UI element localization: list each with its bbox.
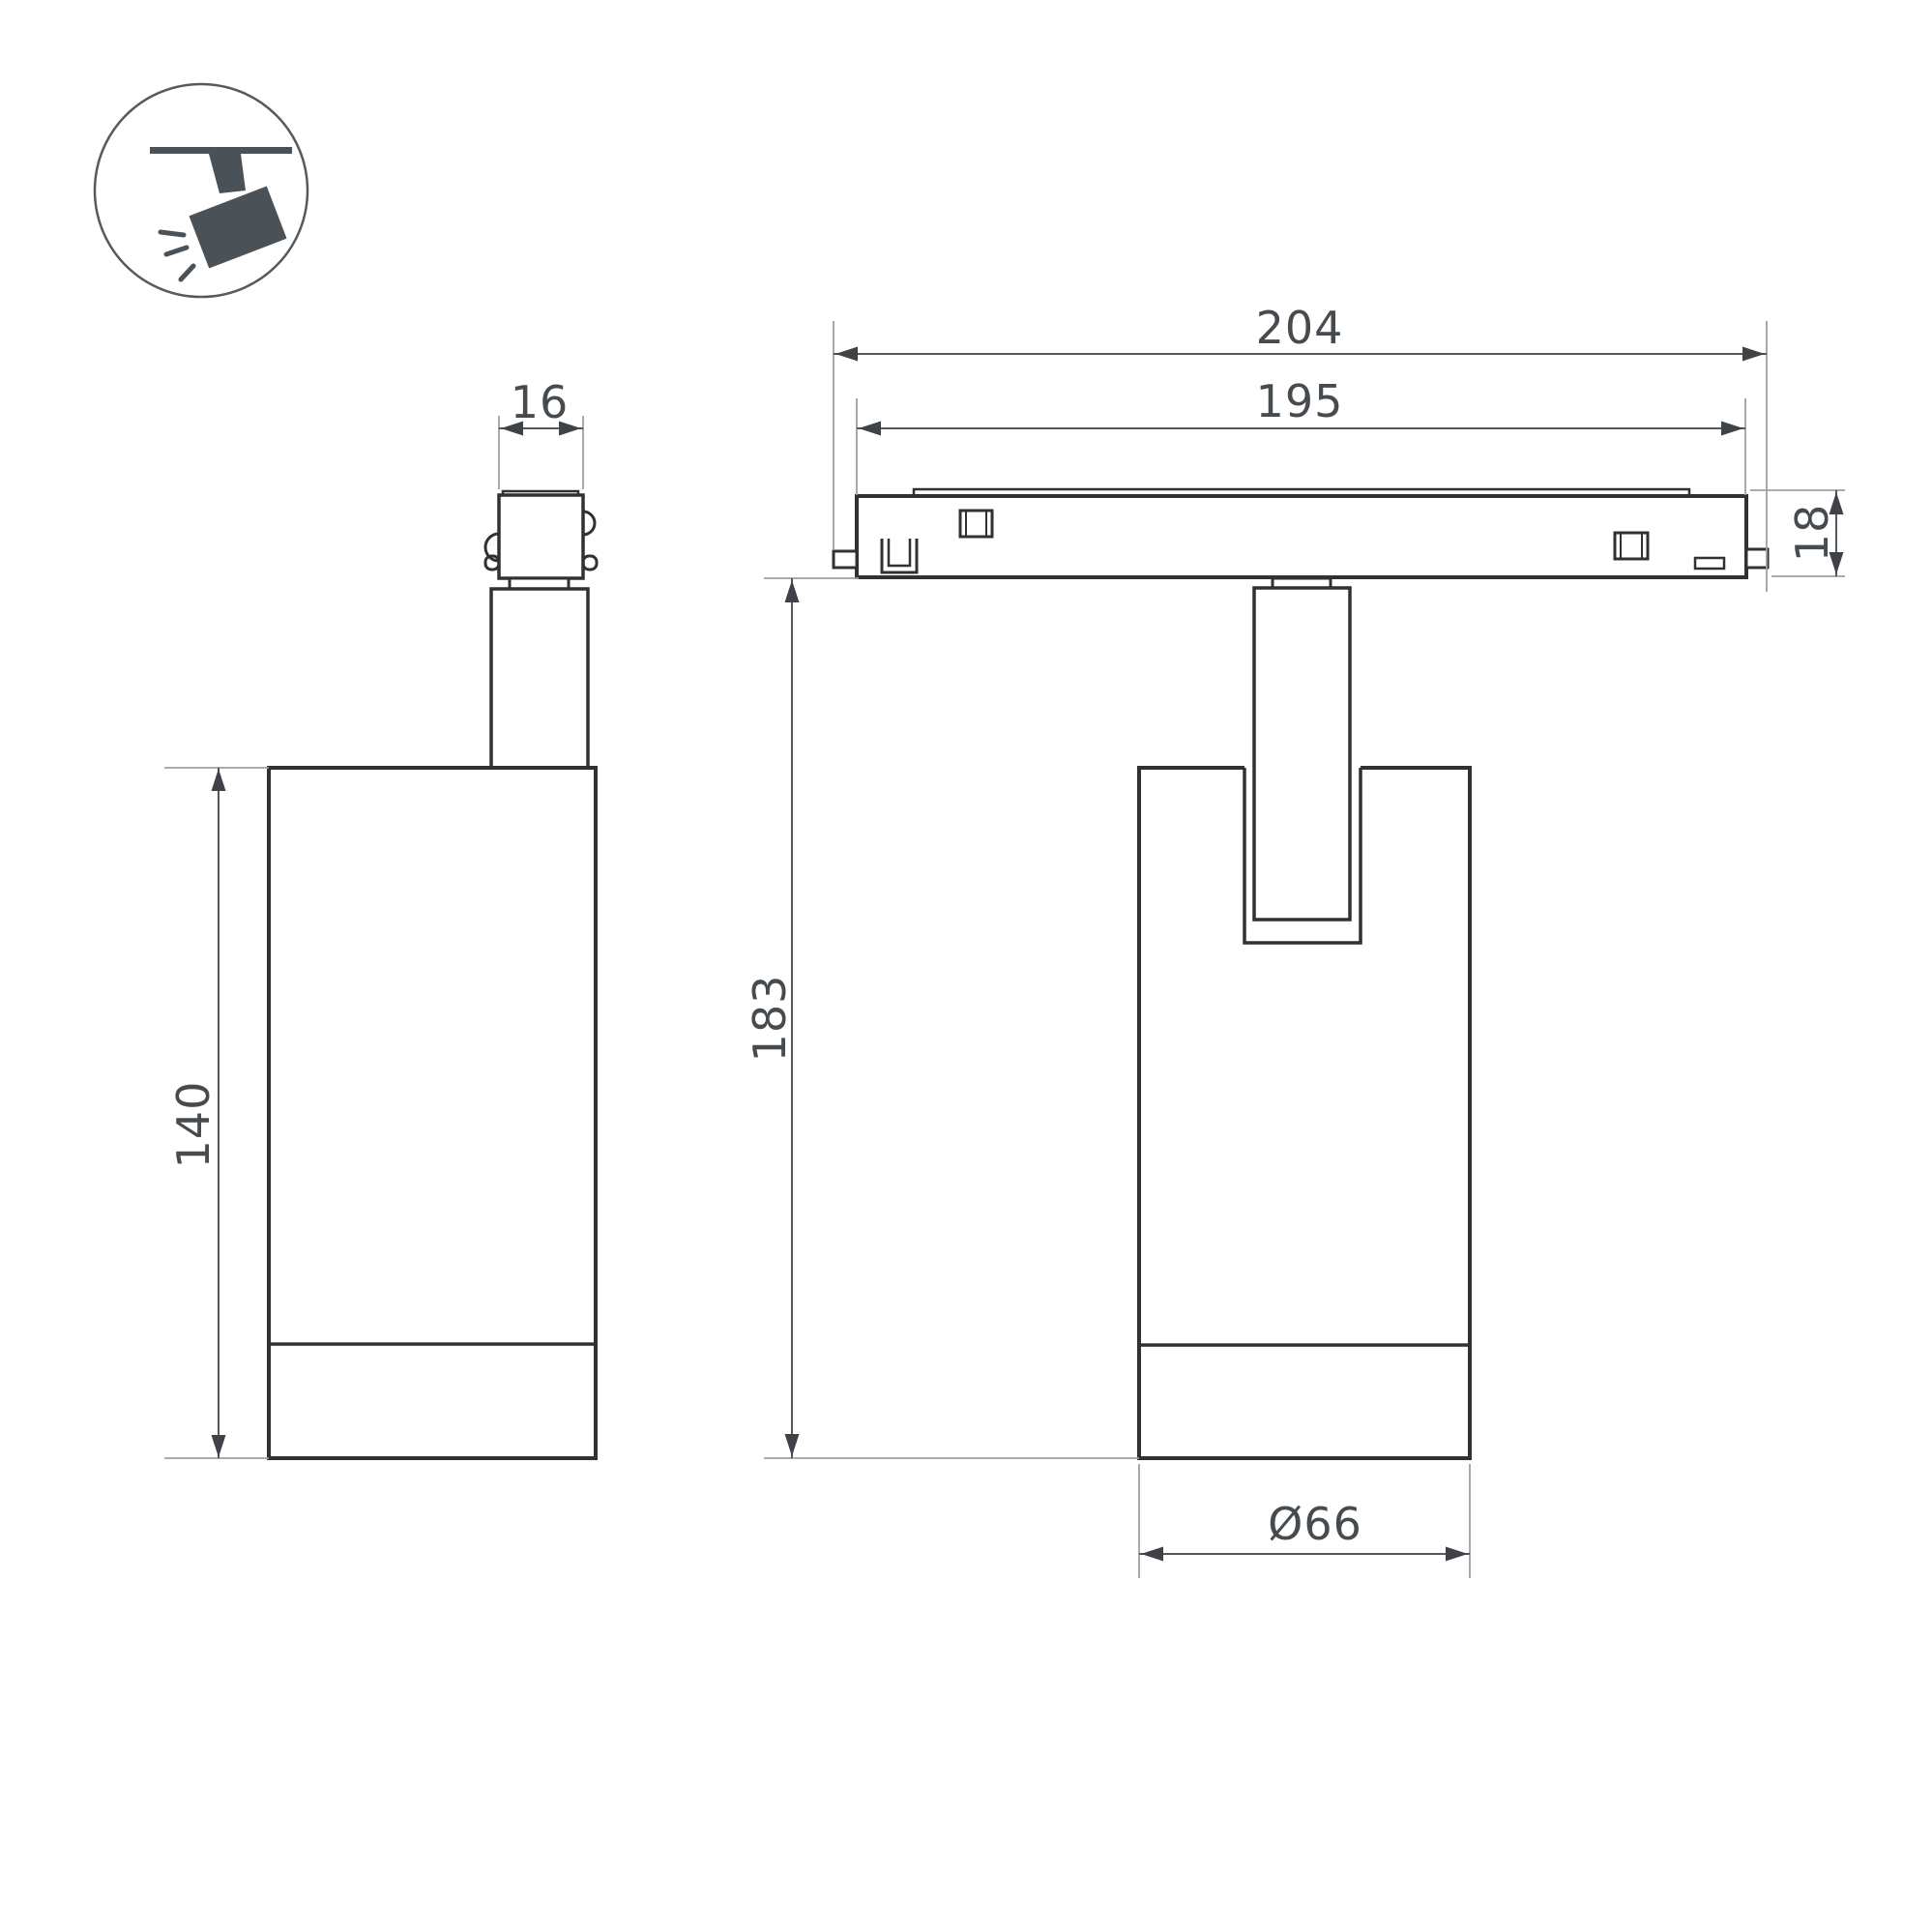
- dim-text-16: 16: [511, 376, 570, 428]
- track-left-end-tab: [834, 551, 857, 568]
- arrow-up: [785, 580, 800, 602]
- arrow-right: [1742, 347, 1765, 362]
- side-adapter-right-latch-arc: [583, 512, 595, 535]
- side-lamp-body: [269, 768, 596, 1458]
- technical-drawing-page: 16 140: [0, 0, 1932, 1932]
- dim-text-18: 18: [1786, 504, 1838, 563]
- icon-circle-border: [95, 84, 307, 297]
- dim-text-195: 195: [1256, 375, 1344, 427]
- side-view: [269, 491, 597, 1458]
- dim-text-140: 140: [167, 1081, 220, 1169]
- front-view: [834, 489, 1768, 1458]
- side-pivot-arm: [491, 589, 588, 768]
- front-pivot-stem: [1254, 588, 1350, 920]
- arrow-left: [859, 422, 881, 436]
- track-spotlight-icon: [95, 84, 307, 297]
- drawing-svg: 16 140: [0, 0, 1932, 1932]
- arrow-down: [785, 1434, 800, 1456]
- dim-text-183: 183: [744, 975, 796, 1063]
- arrow-right: [1446, 1547, 1468, 1562]
- dim-text-204: 204: [1256, 302, 1344, 354]
- dimension-adapter-width: 16: [499, 376, 583, 489]
- arrow-up: [212, 769, 226, 791]
- arrow-right: [1721, 422, 1743, 436]
- dimension-overall-height: 183: [744, 578, 1139, 1458]
- icon-ceiling-track-bar: [150, 147, 292, 154]
- side-adapter-right-ear: [583, 556, 597, 570]
- arrow-left: [835, 347, 858, 362]
- icon-light-ray-1: [161, 232, 184, 235]
- dimension-track-body: 195: [857, 375, 1745, 495]
- arrow-left: [1141, 1547, 1163, 1562]
- dimension-body-height: 140: [164, 768, 269, 1458]
- arrow-down: [212, 1435, 226, 1457]
- side-track-adapter: [499, 495, 583, 578]
- track-right-end-tab: [1746, 549, 1768, 568]
- dim-text-diameter: Ø66: [1268, 1498, 1362, 1550]
- dimension-body-diameter: Ø66: [1139, 1464, 1470, 1578]
